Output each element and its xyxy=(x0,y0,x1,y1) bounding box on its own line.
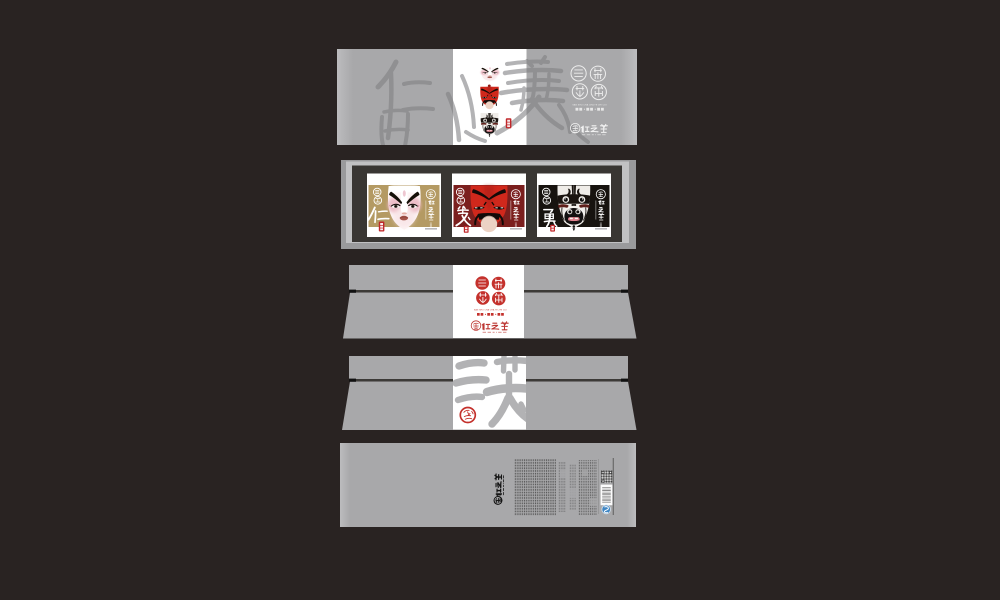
svg-text:SAN SHU CHA CHA YE ZHI CUI: SAN SHU CHA CHA YE ZHI CUI xyxy=(572,103,607,106)
svg-text:SAN SHU CHA CHA YE ZHI CUI: SAN SHU CHA CHA YE ZHI CUI xyxy=(474,309,507,312)
